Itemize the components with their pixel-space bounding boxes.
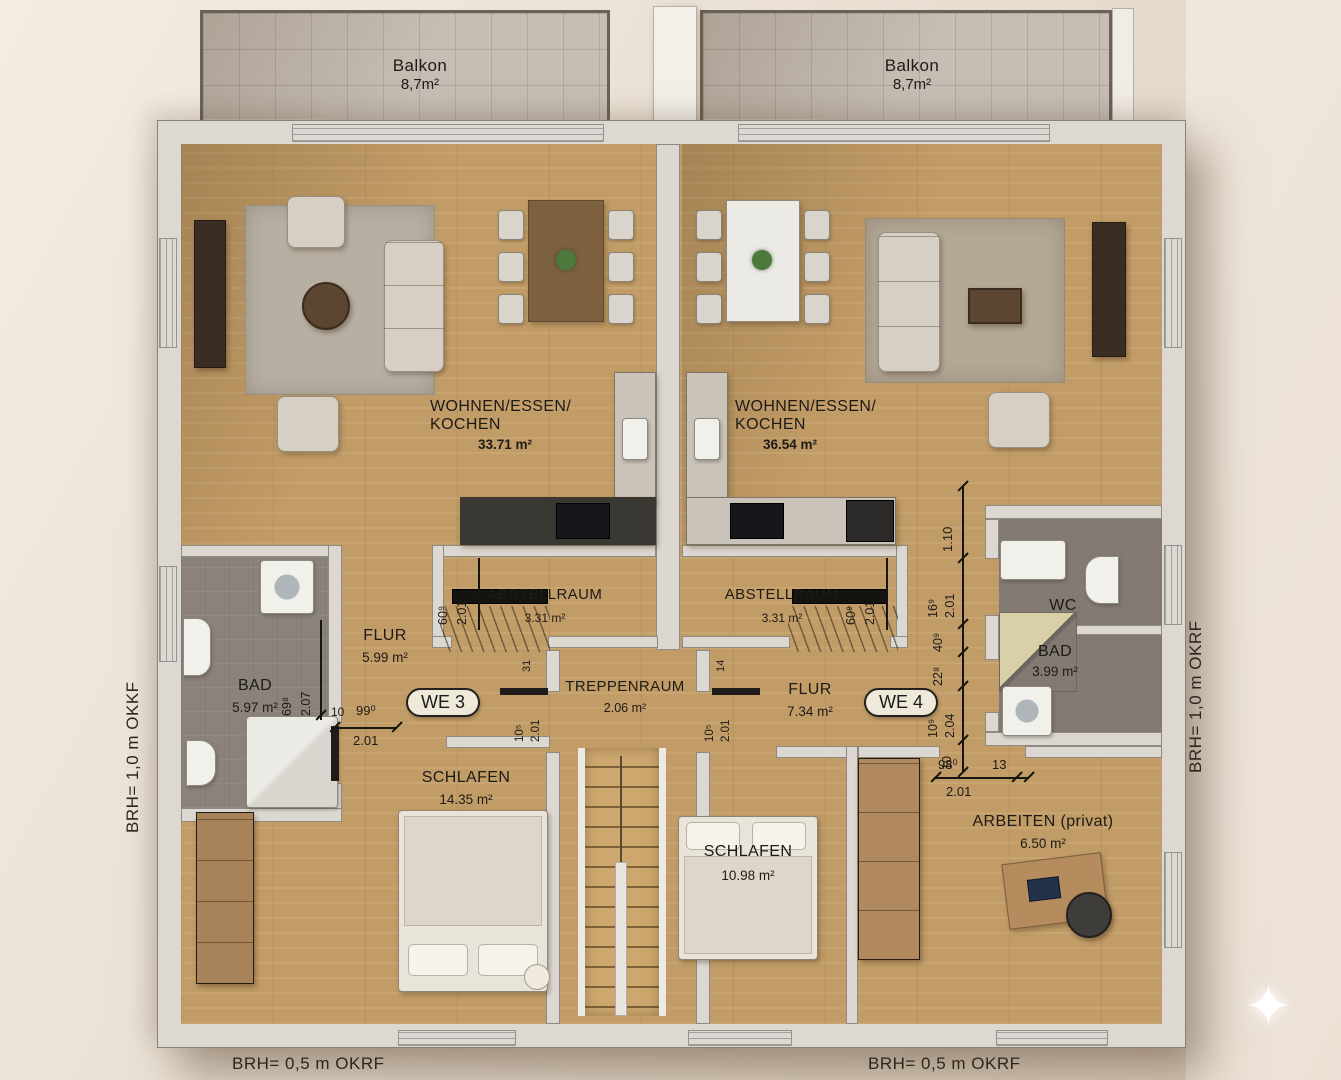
abstell-left-bottom-wall — [548, 636, 658, 648]
wardrobe-right-bedroom — [858, 758, 920, 960]
note-bottom-right: BRH= 0,5 m OKRF — [868, 1054, 1021, 1074]
dim-line — [478, 558, 480, 630]
stool-left-bedroom — [524, 964, 550, 990]
room-label-arbeiten: ARBEITEN (privat) 6.50 m² — [953, 812, 1133, 853]
plant-right — [752, 250, 772, 270]
washing-machine-left — [260, 560, 314, 614]
dim-chain-110: 1.10 — [941, 496, 955, 552]
dim-arbeiten-offset: 13 — [992, 757, 1006, 772]
dim-stair-right-width: 10⁵ — [704, 686, 716, 742]
dim-schlafen-left-offset: 10 — [331, 705, 344, 719]
room-label-schlafen-left: SCHLAFEN 14.35 m² — [396, 768, 536, 809]
pillow — [408, 944, 468, 976]
washing-machine-right — [1002, 686, 1052, 736]
kitchen-sink-left — [622, 418, 648, 460]
room-label-living-left: WOHNEN/ESSEN/ KOCHEN 33.71 m² — [430, 398, 620, 452]
background-highlight — [1186, 0, 1341, 1080]
cooktop-left — [556, 503, 610, 539]
plant-left — [556, 250, 576, 270]
room-label-wc-right: WC — [1015, 596, 1111, 616]
dim-stair-left-width: 10⁵ — [514, 686, 526, 742]
abstell-right-bottom-wall — [682, 636, 790, 648]
sideboard-left — [194, 220, 226, 368]
room-label-abstell-left: ABSTELLRAUM 3.31 m² — [465, 586, 625, 626]
dim-chain-409: 40⁹ — [932, 620, 945, 652]
abstell-left-top-wall — [432, 545, 656, 557]
dim-chain-201: 2.01 — [944, 566, 957, 618]
dim-abstell-right-width: 60⁹ — [845, 563, 858, 625]
flur-right-name: FLUR — [760, 680, 860, 700]
dim-arbeiten-height: 2.01 — [946, 784, 971, 799]
room-label-flur-right: FLUR 7.34 m² — [760, 680, 860, 721]
living-right-area: 36.54 m² — [735, 437, 925, 452]
balcony-left-label: Balkon 8,7m² — [330, 55, 510, 95]
room-label-abstell-right: ABSTELLRAUM 3.31 m² — [702, 586, 862, 626]
window-left-living — [159, 238, 177, 348]
arbeiten-name: ARBEITEN (privat) — [953, 812, 1133, 832]
center-party-wall — [656, 144, 680, 650]
dim-chain-169: 16⁹ — [927, 566, 940, 618]
room-label-bad-right: BAD 3.99 m² — [1007, 642, 1103, 681]
laptop — [1027, 876, 1061, 902]
window-right-living — [1164, 238, 1182, 348]
treppenraum-area: 2.06 m² — [545, 701, 705, 717]
kitchen-appliance-right — [846, 500, 894, 542]
dining-chair — [696, 252, 722, 282]
room-label-treppenraum: TREPPENRAUM 2.06 m² — [545, 678, 705, 716]
dim-chain-228: 22⁸ — [932, 652, 945, 686]
bath-right-side-wall — [985, 519, 999, 559]
abstell-left-name: ABSTELLRAUM — [465, 586, 625, 605]
wardrobe-bottom-left — [196, 812, 254, 984]
dining-chair — [696, 210, 722, 240]
living-right-name2: KOCHEN — [735, 416, 925, 434]
note-bottom-left: BRH= 0,5 m OKRF — [232, 1054, 385, 1074]
dim-arbeiten-width: 98⁰ — [938, 757, 958, 773]
schlafen-right-area: 10.98 m² — [678, 868, 818, 885]
coffee-table-left — [302, 282, 350, 330]
dining-chair — [498, 294, 524, 324]
dim-line — [886, 558, 888, 630]
living-right-name1: WOHNEN/ESSEN/ — [735, 398, 925, 416]
bath-left-top-wall — [181, 545, 342, 557]
flur-left-name: FLUR — [335, 626, 435, 646]
note-right-side: BRH= 1,0 m OKRF — [1186, 558, 1206, 773]
schlafen-right-top-wall — [776, 746, 848, 758]
room-label-flur-left: FLUR 5.99 m² — [335, 626, 435, 667]
arbeiten-top-wall — [1025, 746, 1162, 758]
balcony-left-area: 8,7m² — [330, 76, 510, 95]
window-left-bath — [159, 566, 177, 662]
living-left-area: 33.71 m² — [430, 437, 620, 452]
living-left-name2: KOCHEN — [430, 416, 620, 434]
schlafen-left-name: SCHLAFEN — [396, 768, 536, 788]
dining-chair — [804, 252, 830, 282]
office-chair — [1066, 892, 1112, 938]
flur-right-area: 7.34 m² — [760, 704, 860, 721]
bad-right-area: 3.99 m² — [1007, 664, 1103, 681]
sink-left-bath — [183, 618, 211, 676]
flur-left-area: 5.99 m² — [335, 650, 435, 667]
dim-abstell-right-height: 2.01 — [864, 563, 877, 625]
dim-chain-109: 10⁹ — [927, 688, 940, 738]
treppenraum-name: TREPPENRAUM — [545, 678, 705, 697]
window-bottom-arbeiten — [996, 1030, 1108, 1046]
room-label-living-right: WOHNEN/ESSEN/ KOCHEN 36.54 m² — [735, 398, 925, 452]
bath-right-side-wall — [985, 615, 999, 660]
dining-chair — [498, 252, 524, 282]
dim-bad-left-width: 69⁸ — [281, 628, 294, 716]
cooktop-right — [730, 503, 784, 539]
balcony-right-label: Balkon 8,7m² — [822, 55, 1002, 95]
abstell-left-area: 3.31 m² — [465, 611, 625, 626]
window-top-left — [292, 124, 604, 142]
blanket-left-bed — [404, 816, 542, 926]
dim-abstell-left-height: 2.01 — [456, 563, 469, 625]
bad-right-name: BAD — [1007, 642, 1103, 662]
sparkle-icon: ✦ — [1244, 972, 1293, 1040]
dim-stair-left-height: 2.01 — [530, 686, 542, 742]
dim-stair-left-offset: 31 — [522, 646, 534, 672]
abstell-right-name: ABSTELLRAUM — [702, 586, 862, 605]
balcony-right-end-wall — [1112, 8, 1134, 122]
bath-right-side-wall — [985, 712, 999, 732]
armchair-right — [988, 392, 1050, 448]
wc-right-name: WC — [1015, 596, 1111, 616]
dim-schlafen-left-height: 2.01 — [353, 733, 378, 748]
dining-chair — [608, 252, 634, 282]
balcony-right-area: 8,7m² — [822, 76, 1002, 95]
schlafen-right-name: SCHLAFEN — [678, 842, 818, 862]
balcony-left-name: Balkon — [330, 55, 510, 76]
schlafen-left-area: 14.35 m² — [396, 792, 536, 809]
arbeiten-top-wall — [858, 746, 940, 758]
window-bottom-schlafen-left — [398, 1030, 516, 1046]
coffee-table-right — [968, 288, 1022, 324]
dim-abstell-left-width: 60⁹ — [437, 563, 450, 625]
tv-sideboard-right — [1092, 222, 1126, 357]
kitchen-sink-right — [694, 418, 720, 460]
dim-stair-right-height: 2.01 — [720, 686, 732, 742]
room-label-schlafen-right: SCHLAFEN 10.98 m² — [678, 842, 818, 885]
schlafen-arbeiten-wall — [846, 746, 858, 1024]
dining-chair — [804, 210, 830, 240]
floor-plan: Balkon 8,7m² Balkon 8,7m² — [0, 0, 1341, 1080]
dim-bad-left-height: 2.07 — [300, 628, 313, 716]
sofa-left-unit — [384, 240, 444, 372]
sofa-right-unit — [878, 232, 940, 372]
dim-schlafen-left-width: 99⁰ — [356, 703, 376, 719]
unit-badge-we3: WE 3 — [406, 688, 480, 717]
stair-stringer — [615, 862, 627, 1016]
armchair-left-top — [287, 196, 345, 248]
living-left-name1: WOHNEN/ESSEN/ — [430, 398, 620, 416]
door-leaf-bath-left — [331, 726, 339, 781]
stair-handrail — [620, 756, 622, 862]
window-top-right — [738, 124, 1050, 142]
balcony-divider-wall — [653, 6, 697, 122]
arbeiten-area: 6.50 m² — [953, 836, 1133, 853]
dim-chain-line — [962, 486, 964, 772]
dining-chair — [804, 294, 830, 324]
dining-chair — [498, 210, 524, 240]
dim-stair-right-offset: 14 — [716, 646, 728, 672]
bath-right-top-wall — [985, 505, 1162, 519]
shower-left-bath — [246, 716, 338, 808]
armchair-left-bottom — [277, 396, 339, 452]
window-right-arbeiten — [1164, 852, 1182, 948]
window-right-wc — [1164, 545, 1182, 625]
dining-chair — [608, 210, 634, 240]
dining-chair — [608, 294, 634, 324]
dim-line — [333, 727, 397, 729]
abstell-right-area: 3.31 m² — [702, 611, 862, 626]
note-left-side: BRH= 1,0 m OKKF — [123, 618, 143, 833]
balcony-right-name: Balkon — [822, 55, 1002, 76]
sink-right-bath — [1000, 540, 1066, 580]
dining-chair — [696, 294, 722, 324]
toilet-left-bath — [186, 740, 216, 786]
dim-line — [320, 620, 322, 720]
dim-chain-204: 2.04 — [944, 688, 957, 738]
abstell-right-top-wall — [682, 545, 908, 557]
window-bottom-schlafen-right — [688, 1030, 792, 1046]
